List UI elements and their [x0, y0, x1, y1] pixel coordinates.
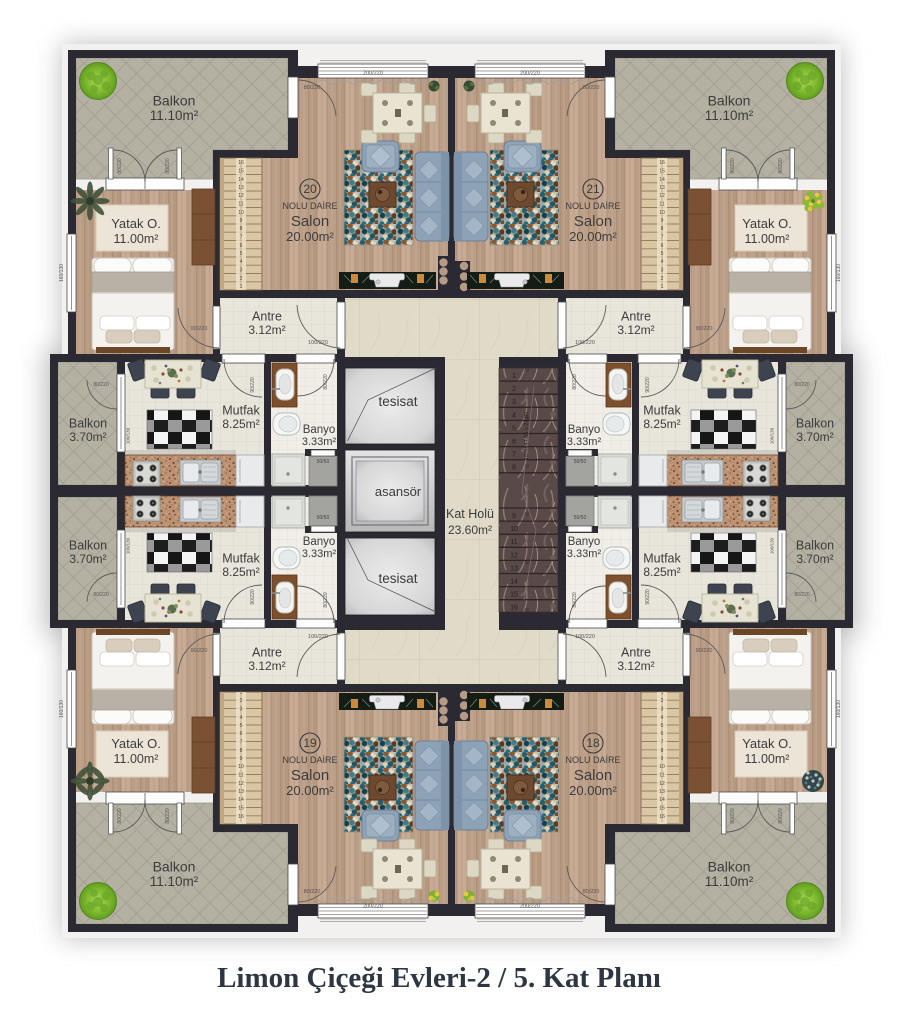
- svg-text:NOLU DAİRE: NOLU DAİRE: [282, 755, 337, 765]
- svg-text:160/130: 160/130: [59, 700, 65, 718]
- svg-text:160/130: 160/130: [59, 264, 65, 282]
- svg-text:80/220: 80/220: [117, 158, 123, 174]
- svg-text:100/130: 100/130: [126, 537, 131, 554]
- svg-text:4: 4: [661, 259, 664, 265]
- svg-text:11.10m²: 11.10m²: [705, 874, 754, 889]
- svg-text:Salon: Salon: [291, 767, 329, 784]
- svg-text:Balkon: Balkon: [69, 416, 107, 430]
- svg-text:90/220: 90/220: [250, 589, 256, 605]
- svg-text:9: 9: [512, 513, 516, 520]
- svg-text:9: 9: [661, 218, 664, 224]
- svg-text:11.00m²: 11.00m²: [745, 752, 790, 766]
- svg-text:80/220: 80/220: [730, 808, 736, 824]
- svg-text:6: 6: [240, 243, 243, 249]
- svg-text:2: 2: [661, 698, 664, 704]
- svg-text:18: 18: [586, 736, 600, 750]
- svg-text:1: 1: [661, 284, 664, 290]
- svg-text:16: 16: [659, 814, 665, 820]
- svg-text:80/220: 80/220: [572, 374, 578, 390]
- svg-text:80/220: 80/220: [572, 592, 578, 608]
- svg-text:NOLU DAİRE: NOLU DAİRE: [565, 755, 620, 765]
- svg-text:3: 3: [661, 268, 664, 274]
- svg-text:100/130: 100/130: [770, 427, 775, 444]
- svg-text:90/220: 90/220: [696, 326, 713, 332]
- svg-text:8: 8: [661, 226, 664, 232]
- svg-text:200/220: 200/220: [363, 71, 383, 77]
- svg-text:Antre: Antre: [621, 309, 651, 323]
- svg-text:15: 15: [238, 806, 244, 812]
- svg-text:3: 3: [240, 707, 243, 713]
- svg-text:Balkon: Balkon: [796, 538, 834, 552]
- svg-text:12: 12: [238, 193, 244, 199]
- svg-text:4: 4: [240, 259, 243, 265]
- svg-text:asansör: asansör: [375, 484, 422, 499]
- svg-text:80/220: 80/220: [304, 85, 321, 91]
- svg-text:13: 13: [238, 185, 244, 191]
- svg-text:100/130: 100/130: [126, 427, 131, 444]
- svg-text:20: 20: [303, 182, 317, 196]
- svg-text:11.10m²: 11.10m²: [150, 874, 199, 889]
- svg-text:3: 3: [661, 707, 664, 713]
- svg-text:10: 10: [510, 526, 518, 533]
- svg-text:80/220: 80/220: [165, 808, 171, 824]
- svg-text:8: 8: [240, 748, 243, 754]
- svg-text:16: 16: [238, 160, 244, 166]
- svg-text:100/220: 100/220: [308, 340, 328, 346]
- svg-text:Yatak O.: Yatak O.: [111, 736, 161, 751]
- svg-text:Salon: Salon: [574, 213, 612, 230]
- svg-text:6: 6: [661, 243, 664, 249]
- svg-text:100/220: 100/220: [575, 634, 595, 640]
- svg-text:80/220: 80/220: [794, 592, 810, 598]
- svg-text:14: 14: [659, 177, 665, 183]
- svg-text:1: 1: [512, 373, 516, 380]
- svg-text:Balkon: Balkon: [796, 416, 834, 430]
- svg-text:7: 7: [512, 452, 516, 459]
- svg-text:Banyo: Banyo: [303, 424, 336, 436]
- svg-text:16: 16: [510, 605, 518, 612]
- svg-text:80/220: 80/220: [794, 382, 810, 388]
- svg-text:90/220: 90/220: [250, 377, 256, 393]
- svg-text:8.25m²: 8.25m²: [643, 417, 680, 431]
- svg-text:NOLU DAİRE: NOLU DAİRE: [282, 201, 337, 211]
- svg-text:11: 11: [238, 202, 243, 208]
- svg-text:200/220: 200/220: [363, 904, 383, 910]
- svg-text:8: 8: [661, 748, 664, 754]
- svg-text:3.33m²: 3.33m²: [567, 548, 602, 560]
- svg-text:160/130: 160/130: [836, 700, 842, 718]
- svg-text:Antre: Antre: [252, 309, 282, 323]
- svg-text:80/220: 80/220: [323, 592, 329, 608]
- svg-text:20.00m²: 20.00m²: [286, 229, 334, 244]
- svg-text:11: 11: [659, 773, 664, 779]
- svg-text:4: 4: [661, 715, 664, 721]
- svg-text:3: 3: [240, 268, 243, 274]
- svg-text:13: 13: [659, 789, 665, 795]
- svg-text:3.33m²: 3.33m²: [302, 436, 337, 448]
- svg-text:10: 10: [238, 764, 244, 770]
- svg-text:20.00m²: 20.00m²: [569, 229, 617, 244]
- svg-text:8.25m²: 8.25m²: [222, 417, 259, 431]
- svg-text:80/220: 80/220: [583, 889, 600, 895]
- svg-text:14: 14: [510, 579, 518, 586]
- svg-text:11.10m²: 11.10m²: [705, 108, 754, 123]
- svg-text:50/50: 50/50: [574, 515, 587, 521]
- svg-text:80/220: 80/220: [304, 889, 321, 895]
- svg-text:Salon: Salon: [291, 213, 329, 230]
- svg-text:80/220: 80/220: [730, 158, 736, 174]
- svg-text:80/220: 80/220: [117, 808, 123, 824]
- svg-text:12: 12: [238, 781, 244, 787]
- svg-text:8: 8: [512, 465, 516, 472]
- svg-text:15: 15: [659, 806, 665, 812]
- svg-text:7: 7: [661, 235, 664, 241]
- svg-text:5: 5: [240, 723, 243, 729]
- svg-text:11: 11: [238, 773, 243, 779]
- svg-text:Kat Holü: Kat Holü: [446, 507, 494, 521]
- svg-text:13: 13: [659, 185, 665, 191]
- svg-text:Balkon: Balkon: [69, 538, 107, 552]
- svg-text:100/220: 100/220: [575, 340, 595, 346]
- svg-text:13: 13: [238, 789, 244, 795]
- svg-text:7: 7: [240, 740, 243, 746]
- svg-text:3.33m²: 3.33m²: [302, 548, 337, 560]
- svg-text:7: 7: [661, 740, 664, 746]
- svg-text:3.70m²: 3.70m²: [69, 430, 106, 444]
- svg-text:10: 10: [659, 764, 665, 770]
- svg-text:3.70m²: 3.70m²: [796, 552, 833, 566]
- svg-text:Balkon: Balkon: [153, 858, 196, 874]
- svg-text:Banyo: Banyo: [568, 424, 601, 436]
- svg-text:90/220: 90/220: [191, 648, 208, 654]
- svg-text:80/220: 80/220: [93, 382, 109, 388]
- svg-text:Limon Çiçeği Evleri-2 / 5. Kat: Limon Çiçeği Evleri-2 / 5. Kat Planı: [217, 962, 661, 994]
- svg-text:Balkon: Balkon: [153, 92, 196, 108]
- svg-text:3.70m²: 3.70m²: [796, 430, 833, 444]
- svg-text:5: 5: [661, 723, 664, 729]
- svg-text:16+H 17,81 x 27,00: 16+H 17,81 x 27,00: [524, 412, 530, 460]
- svg-text:3.12m²: 3.12m²: [617, 659, 654, 673]
- svg-text:Mutfak: Mutfak: [643, 403, 681, 417]
- svg-text:Salon: Salon: [574, 767, 612, 784]
- svg-text:10: 10: [238, 210, 244, 216]
- svg-text:11.00m²: 11.00m²: [114, 752, 159, 766]
- svg-text:8: 8: [240, 226, 243, 232]
- svg-text:6: 6: [661, 731, 664, 737]
- svg-text:1: 1: [240, 284, 243, 290]
- svg-text:50/50: 50/50: [317, 459, 330, 465]
- svg-text:3: 3: [512, 399, 516, 406]
- svg-text:16: 16: [659, 160, 665, 166]
- svg-text:8.25m²: 8.25m²: [222, 565, 259, 579]
- svg-text:14: 14: [238, 177, 244, 183]
- svg-text:10: 10: [659, 210, 665, 216]
- svg-text:Balkon: Balkon: [708, 858, 751, 874]
- svg-text:160/130: 160/130: [836, 264, 842, 282]
- svg-text:2: 2: [240, 698, 243, 704]
- svg-text:80/220: 80/220: [93, 592, 109, 598]
- svg-text:tesisat: tesisat: [378, 571, 417, 586]
- svg-text:11.10m²: 11.10m²: [150, 108, 199, 123]
- svg-text:12: 12: [659, 781, 665, 787]
- svg-text:80/220: 80/220: [778, 808, 784, 824]
- svg-text:90/220: 90/220: [696, 648, 713, 654]
- svg-text:13: 13: [510, 565, 518, 572]
- svg-text:5: 5: [240, 251, 243, 257]
- svg-text:Mutfak: Mutfak: [643, 551, 681, 565]
- svg-text:5: 5: [512, 425, 516, 432]
- svg-text:15: 15: [238, 169, 244, 175]
- svg-text:11.00m²: 11.00m²: [745, 232, 790, 246]
- svg-text:4: 4: [240, 715, 243, 721]
- svg-text:6: 6: [240, 731, 243, 737]
- svg-text:Antre: Antre: [621, 645, 651, 659]
- svg-text:7: 7: [240, 235, 243, 241]
- svg-text:80/220: 80/220: [778, 158, 784, 174]
- svg-text:4: 4: [512, 412, 516, 419]
- svg-text:80/220: 80/220: [583, 85, 600, 91]
- svg-text:90/220: 90/220: [191, 326, 208, 332]
- svg-text:Antre: Antre: [252, 645, 282, 659]
- svg-text:80/220: 80/220: [165, 158, 171, 174]
- svg-text:50/50: 50/50: [317, 515, 330, 521]
- svg-text:Banyo: Banyo: [568, 536, 601, 548]
- svg-text:20.00m²: 20.00m²: [569, 783, 617, 798]
- svg-text:100/220: 100/220: [308, 634, 328, 640]
- svg-text:80/220: 80/220: [323, 374, 329, 390]
- svg-text:tesisat: tesisat: [378, 394, 417, 409]
- svg-text:90/220: 90/220: [645, 377, 651, 393]
- svg-text:19: 19: [303, 736, 317, 750]
- svg-text:3.33m²: 3.33m²: [567, 436, 602, 448]
- svg-text:200/220: 200/220: [520, 71, 540, 77]
- svg-text:2: 2: [512, 386, 516, 393]
- svg-text:11.00m²: 11.00m²: [114, 232, 159, 246]
- svg-text:Balkon: Balkon: [708, 92, 751, 108]
- svg-text:5: 5: [661, 251, 664, 257]
- svg-text:Yatak O.: Yatak O.: [742, 736, 792, 751]
- svg-text:9: 9: [240, 756, 243, 762]
- svg-text:16: 16: [238, 814, 244, 820]
- svg-text:12: 12: [510, 552, 518, 559]
- svg-text:Yatak O.: Yatak O.: [742, 216, 792, 231]
- svg-text:2: 2: [661, 276, 664, 282]
- svg-text:1: 1: [661, 690, 664, 696]
- svg-text:3.12m²: 3.12m²: [248, 323, 285, 337]
- svg-text:NOLU DAİRE: NOLU DAİRE: [565, 201, 620, 211]
- svg-text:3.12m²: 3.12m²: [248, 659, 285, 673]
- svg-text:11: 11: [659, 202, 664, 208]
- svg-text:21: 21: [586, 182, 600, 196]
- svg-text:Mutfak: Mutfak: [222, 551, 260, 565]
- svg-text:6: 6: [512, 439, 516, 446]
- svg-text:14: 14: [238, 797, 244, 803]
- svg-text:200/220: 200/220: [520, 904, 540, 910]
- svg-text:8.25m²: 8.25m²: [643, 565, 680, 579]
- svg-text:90/220: 90/220: [645, 589, 651, 605]
- svg-text:9: 9: [240, 218, 243, 224]
- svg-text:11: 11: [510, 539, 517, 546]
- svg-text:Yatak O.: Yatak O.: [111, 216, 161, 231]
- svg-text:12: 12: [659, 193, 665, 199]
- svg-text:15: 15: [659, 169, 665, 175]
- svg-text:2: 2: [240, 276, 243, 282]
- svg-text:20.00m²: 20.00m²: [286, 783, 334, 798]
- svg-text:1: 1: [240, 690, 243, 696]
- svg-text:9: 9: [661, 756, 664, 762]
- svg-text:50/50: 50/50: [574, 459, 587, 465]
- svg-text:Banyo: Banyo: [303, 536, 336, 548]
- svg-text:Mutfak: Mutfak: [222, 403, 260, 417]
- svg-text:23.60m²: 23.60m²: [448, 523, 492, 537]
- svg-text:15: 15: [510, 592, 518, 599]
- svg-text:14: 14: [659, 797, 665, 803]
- svg-text:3.70m²: 3.70m²: [69, 552, 106, 566]
- svg-text:100/130: 100/130: [770, 537, 775, 554]
- svg-text:3.12m²: 3.12m²: [617, 323, 654, 337]
